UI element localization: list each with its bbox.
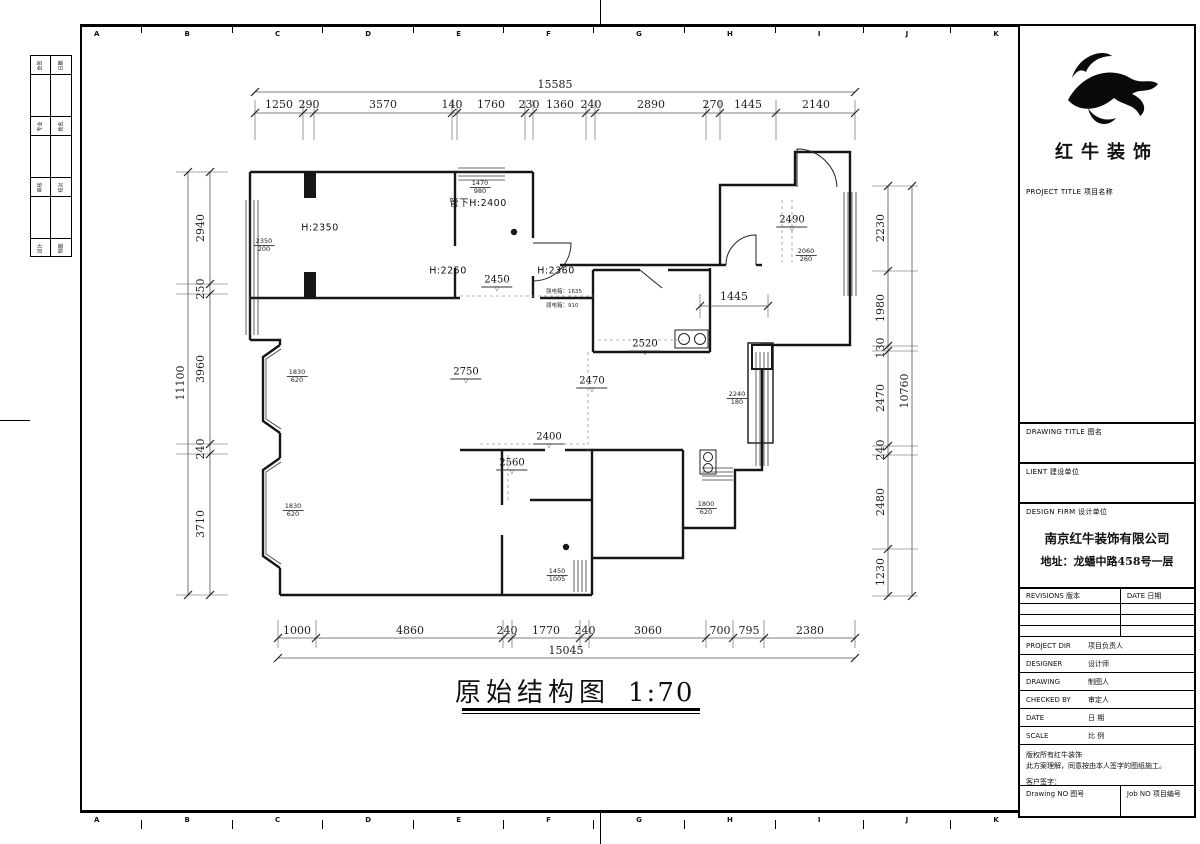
dim-label: 240 <box>581 98 602 111</box>
company-name: 南京红牛装饰有限公司 <box>1020 528 1194 547</box>
drawing-no-label: Drawing NO 图号 <box>1020 786 1121 816</box>
room-height-label: H:2250 <box>429 266 467 277</box>
dim-total-right: 10760 <box>898 374 911 409</box>
wall-piers <box>304 172 569 550</box>
level-triangle-icon: ▽ <box>495 287 500 293</box>
drawing-row: DRAWING制图人 <box>1020 673 1194 691</box>
revision-row-empty <box>1020 615 1194 626</box>
dim-label: 4860 <box>396 624 424 637</box>
designer-row: DESIGNER设计师 <box>1020 655 1194 673</box>
dim-label: 2380 <box>796 624 824 637</box>
dim-label: 130 <box>874 338 887 359</box>
level-mark: 2470▽ <box>576 377 607 394</box>
dim-label: 2230 <box>874 214 887 242</box>
design-firm-section: DESIGN FIRM 设计单位 南京红牛装饰有限公司 地址：龙蟠中路458号一… <box>1020 504 1194 589</box>
copyright-line1: 版权所有红牛装饰 <box>1026 750 1190 761</box>
drawing-title: 原始结构图1:70 <box>455 672 694 709</box>
dim-label: 290 <box>299 98 320 111</box>
project-title-section: PROJECT TITLE 项目名称 <box>1020 184 1194 424</box>
window-size-label: 2350200 <box>254 238 275 254</box>
level-mark: 2450▽ <box>481 276 512 293</box>
project-dir-row: PROJECT DIR项目负责人 <box>1020 637 1194 655</box>
room-height-label: H:2360 <box>537 266 575 277</box>
title-underline-thin <box>462 713 700 714</box>
copyright-note: 版权所有红牛装饰 此方案理解，同意按由本人签字的图纸施工。 客户签字： <box>1026 750 1190 788</box>
dim-label: 1250 <box>265 98 293 111</box>
level-triangle-icon: ▽ <box>547 444 552 450</box>
dim-label: 3570 <box>369 98 397 111</box>
date-row: DATE日 期 <box>1020 709 1194 727</box>
dim-label: 1360 <box>546 98 574 111</box>
dim-label: 3060 <box>634 624 662 637</box>
number-row: Drawing NO 图号 Job NO 项目编号 <box>1020 785 1194 816</box>
level-mark: 2400▽ <box>533 433 564 450</box>
dim-label: 240 <box>497 624 518 637</box>
dim-label: 270 <box>703 98 724 111</box>
weak-elec-box-label: 弱电箱：910 <box>546 301 579 309</box>
dim-label: 1000 <box>283 624 311 637</box>
drawing-scale: 1:70 <box>628 678 694 708</box>
title-underline-thick <box>462 708 700 711</box>
revisions-col-label: REVISIONS 版本 <box>1020 589 1121 603</box>
hall-door-arc <box>726 235 756 265</box>
window-size-label: 1830620 <box>283 503 304 519</box>
revision-row-empty <box>1020 626 1194 637</box>
dim-label: 1230 <box>874 558 887 586</box>
level-triangle-icon: ▽ <box>790 227 795 233</box>
project-title-label: PROJECT TITLE 项目名称 <box>1020 184 1194 197</box>
dim-label: 1445 <box>734 98 762 111</box>
dim-label: 3960 <box>194 355 207 383</box>
room-height-label: H:2350 <box>301 223 339 234</box>
window-size-label: 2240180 <box>727 391 748 407</box>
window-size-label: 1830620 <box>287 369 308 385</box>
level-mark: 2520▽ <box>629 340 660 357</box>
drawing-title-section: DRAWING TITLE 图名 <box>1020 424 1194 464</box>
dim-label: 795 <box>739 624 760 637</box>
stove <box>675 330 708 348</box>
duct-height-label: 管下H:2400 <box>449 195 507 209</box>
client-label: LIENT 建设单位 <box>1020 464 1194 477</box>
dim-label: 2480 <box>874 488 887 516</box>
job-no-label: Job NO 项目编号 <box>1121 786 1194 816</box>
drawing-sheet: A B C D E F G H I J K A B C D E F G H I … <box>0 0 1200 844</box>
dim-inner-1445: 1445 <box>720 290 748 303</box>
design-firm-label: DESIGN FIRM 设计单位 <box>1020 504 1194 517</box>
dim-label: 2140 <box>802 98 830 111</box>
level-mark: 2560▽ <box>496 459 527 476</box>
dim-label: 240 <box>575 624 596 637</box>
scale-row: SCALE比 例 <box>1020 727 1194 745</box>
level-triangle-icon: ▽ <box>590 388 595 394</box>
company-logo <box>1058 44 1158 136</box>
level-triangle-icon: ▽ <box>643 351 648 357</box>
dim-label: 3710 <box>194 510 207 538</box>
level-mark: 2750▽ <box>450 368 481 385</box>
dim-label: 1980 <box>874 294 887 322</box>
drain-dot <box>511 229 517 235</box>
top-right-door-arc <box>797 149 837 187</box>
drain-dot <box>563 544 569 550</box>
level-triangle-icon: ▽ <box>510 470 515 476</box>
dim-label: 240 <box>194 439 207 460</box>
level-mark: 2490▽ <box>776 216 807 233</box>
dim-total-left: 11100 <box>174 366 187 401</box>
date-col-label: DATE 日期 <box>1121 589 1194 603</box>
floor-plan-svg: 15585 1250 290 3570 140 1760 230 1360 24… <box>0 0 1040 844</box>
window-size-label: 1470980 <box>470 180 491 196</box>
window-size-label: 1800620 <box>696 501 717 517</box>
drawing-title-text: 原始结构图 <box>455 678 610 708</box>
title-block: 红牛装饰 PROJECT TITLE 项目名称 DRAWING TITLE 图名… <box>1018 24 1196 818</box>
strong-elec-box-label: 强电箱：1635 <box>546 287 582 295</box>
reference-lines <box>460 200 792 500</box>
revision-row-empty <box>1020 604 1194 615</box>
window-size-label: 2060260 <box>796 248 817 264</box>
dim-label: 230 <box>519 98 540 111</box>
checked-by-row: CHECKED BY审定人 <box>1020 691 1194 709</box>
dim-label: 2940 <box>194 214 207 242</box>
door-leaf <box>640 270 662 288</box>
dim-label: 140 <box>442 98 463 111</box>
brand-name: 红牛装饰 <box>1020 138 1194 164</box>
dim-label: 700 <box>710 624 731 637</box>
level-triangle-icon: ▽ <box>464 379 469 385</box>
revisions-header: REVISIONS 版本 DATE 日期 <box>1020 589 1194 604</box>
drawing-title-label: DRAWING TITLE 图名 <box>1020 424 1194 437</box>
dimension-labels: 15585 1250 290 3570 140 1760 230 1360 24… <box>174 78 911 657</box>
dim-label: 2890 <box>637 98 665 111</box>
client-section: LIENT 建设单位 <box>1020 464 1194 504</box>
company-address: 地址：龙蟠中路458号一层 <box>1020 553 1194 569</box>
window-size-label: 14501005 <box>547 568 568 584</box>
bull-logo-icon <box>1068 53 1158 124</box>
fixtures <box>640 270 716 474</box>
copyright-line2: 此方案理解，同意按由本人签字的图纸施工。 <box>1026 761 1190 772</box>
dim-label: 240 <box>874 440 887 461</box>
dim-total-bottom: 15045 <box>549 644 584 657</box>
dim-label: 1770 <box>532 624 560 637</box>
dim-total-top: 15585 <box>538 78 573 91</box>
dim-label: 2470 <box>874 384 887 412</box>
dim-label: 250 <box>194 279 207 300</box>
dim-label: 1760 <box>477 98 505 111</box>
